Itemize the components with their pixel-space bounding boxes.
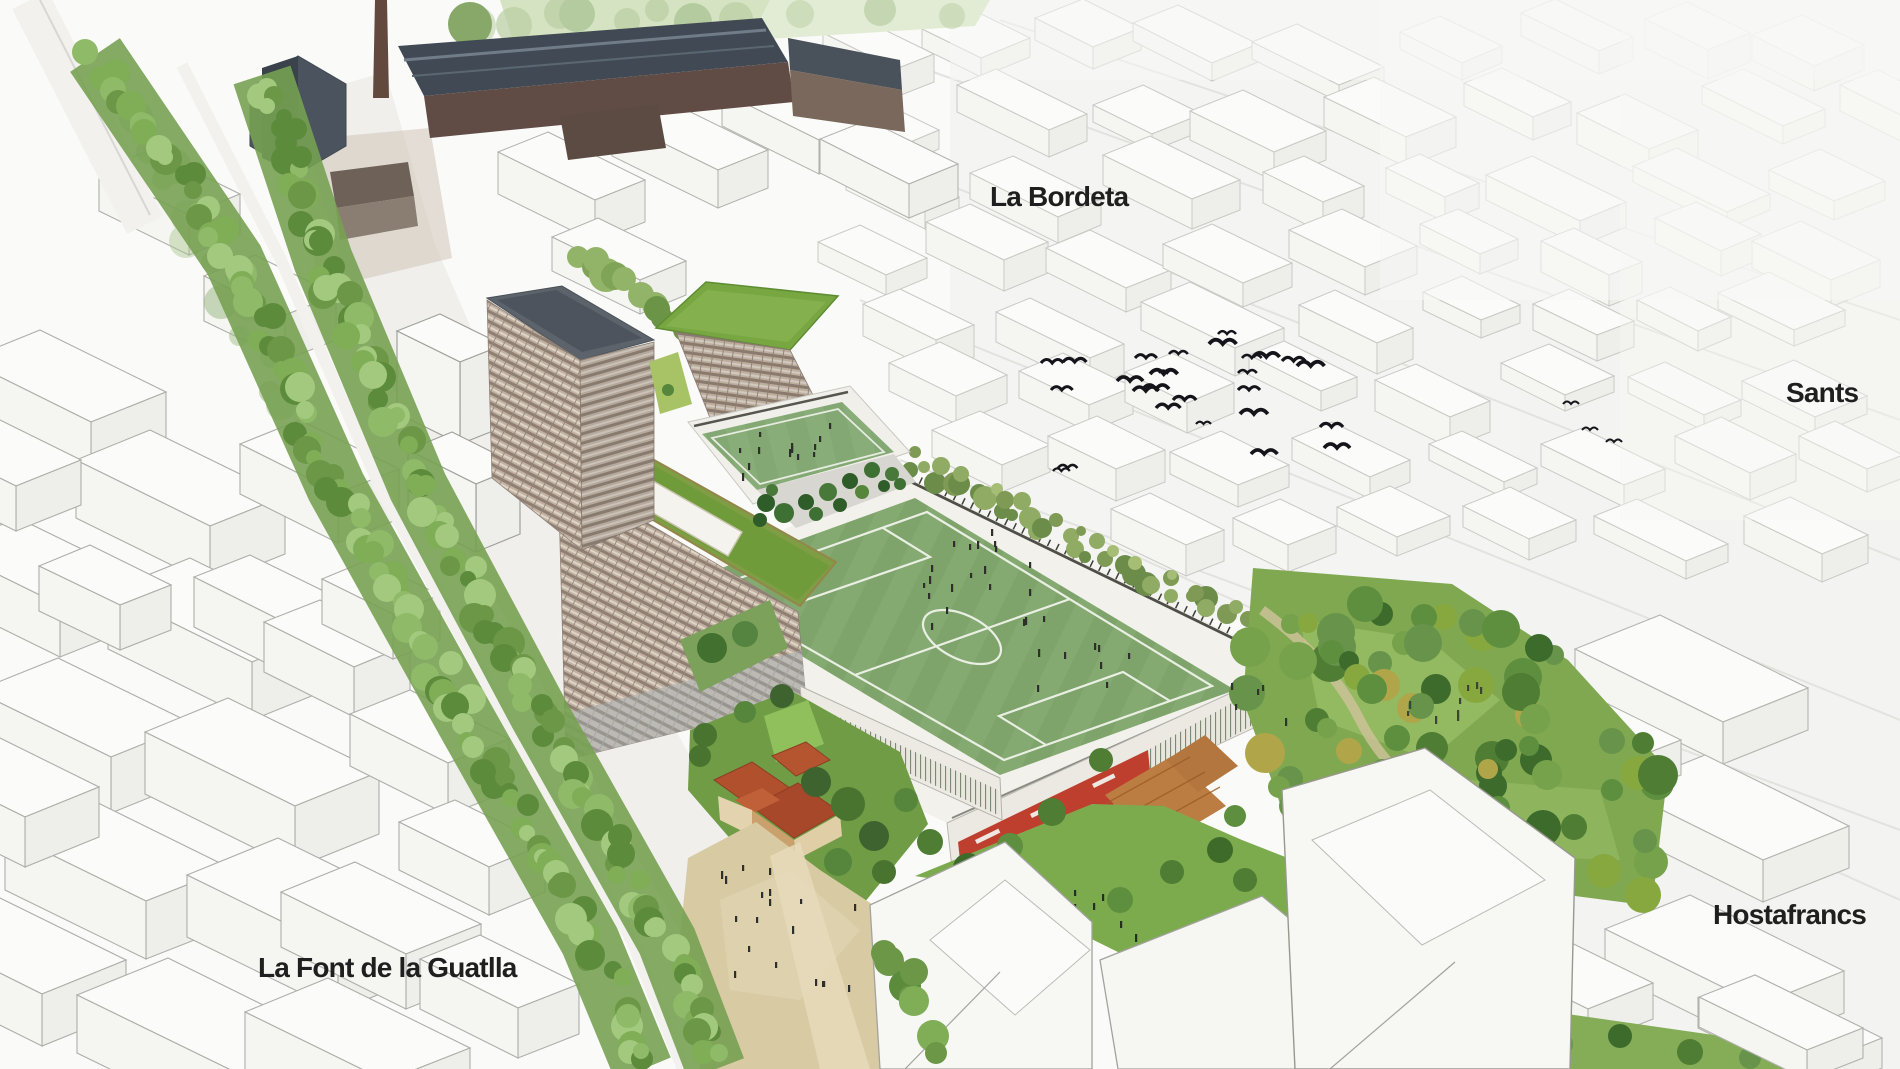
svg-text:Sants: Sants xyxy=(1786,377,1858,408)
svg-text:La Bordeta: La Bordeta xyxy=(990,181,1129,212)
svg-text:La Font de la Guatlla: La Font de la Guatlla xyxy=(258,952,518,983)
svg-text:Hostafrancs: Hostafrancs xyxy=(1713,899,1866,930)
